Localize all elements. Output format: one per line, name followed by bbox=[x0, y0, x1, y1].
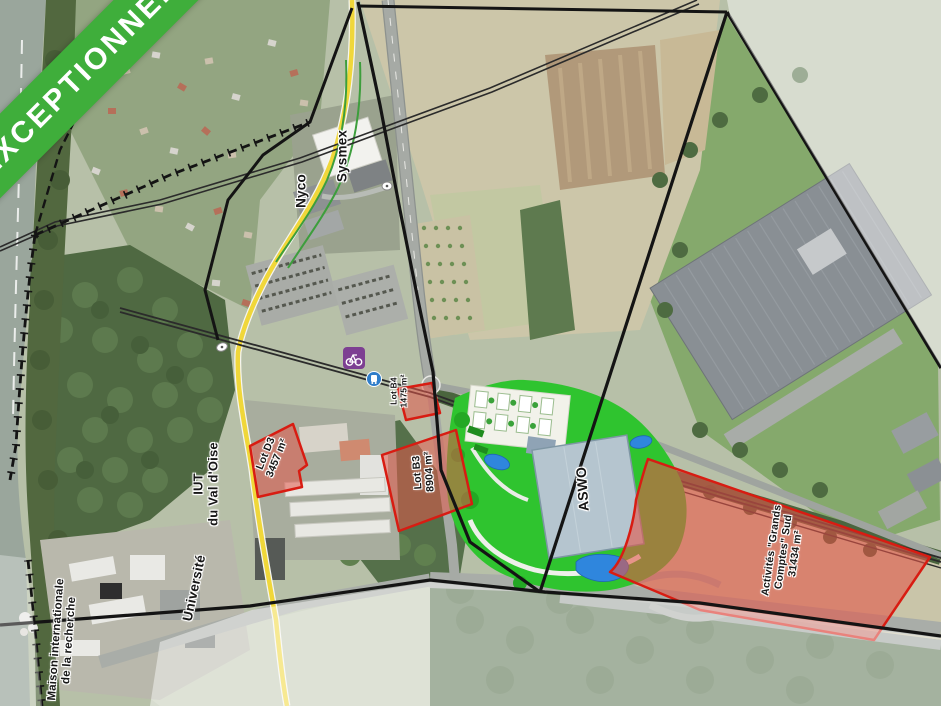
satellite-map-art bbox=[0, 0, 941, 706]
label-sysmex: Sysmex bbox=[334, 130, 349, 182]
label-lot-b4: Lot B41475 m² bbox=[389, 374, 408, 407]
label-iut: IUTdu Val d'Oise bbox=[191, 442, 220, 526]
site-plan-map: Sysmex Nyco Lot B41475 m² Lot D33457 m² … bbox=[0, 0, 941, 706]
label-lot-b3: Lot B38904 m² bbox=[411, 451, 437, 493]
label-nyco: Nyco bbox=[293, 174, 308, 208]
label-aswo: ASWO bbox=[574, 466, 593, 511]
